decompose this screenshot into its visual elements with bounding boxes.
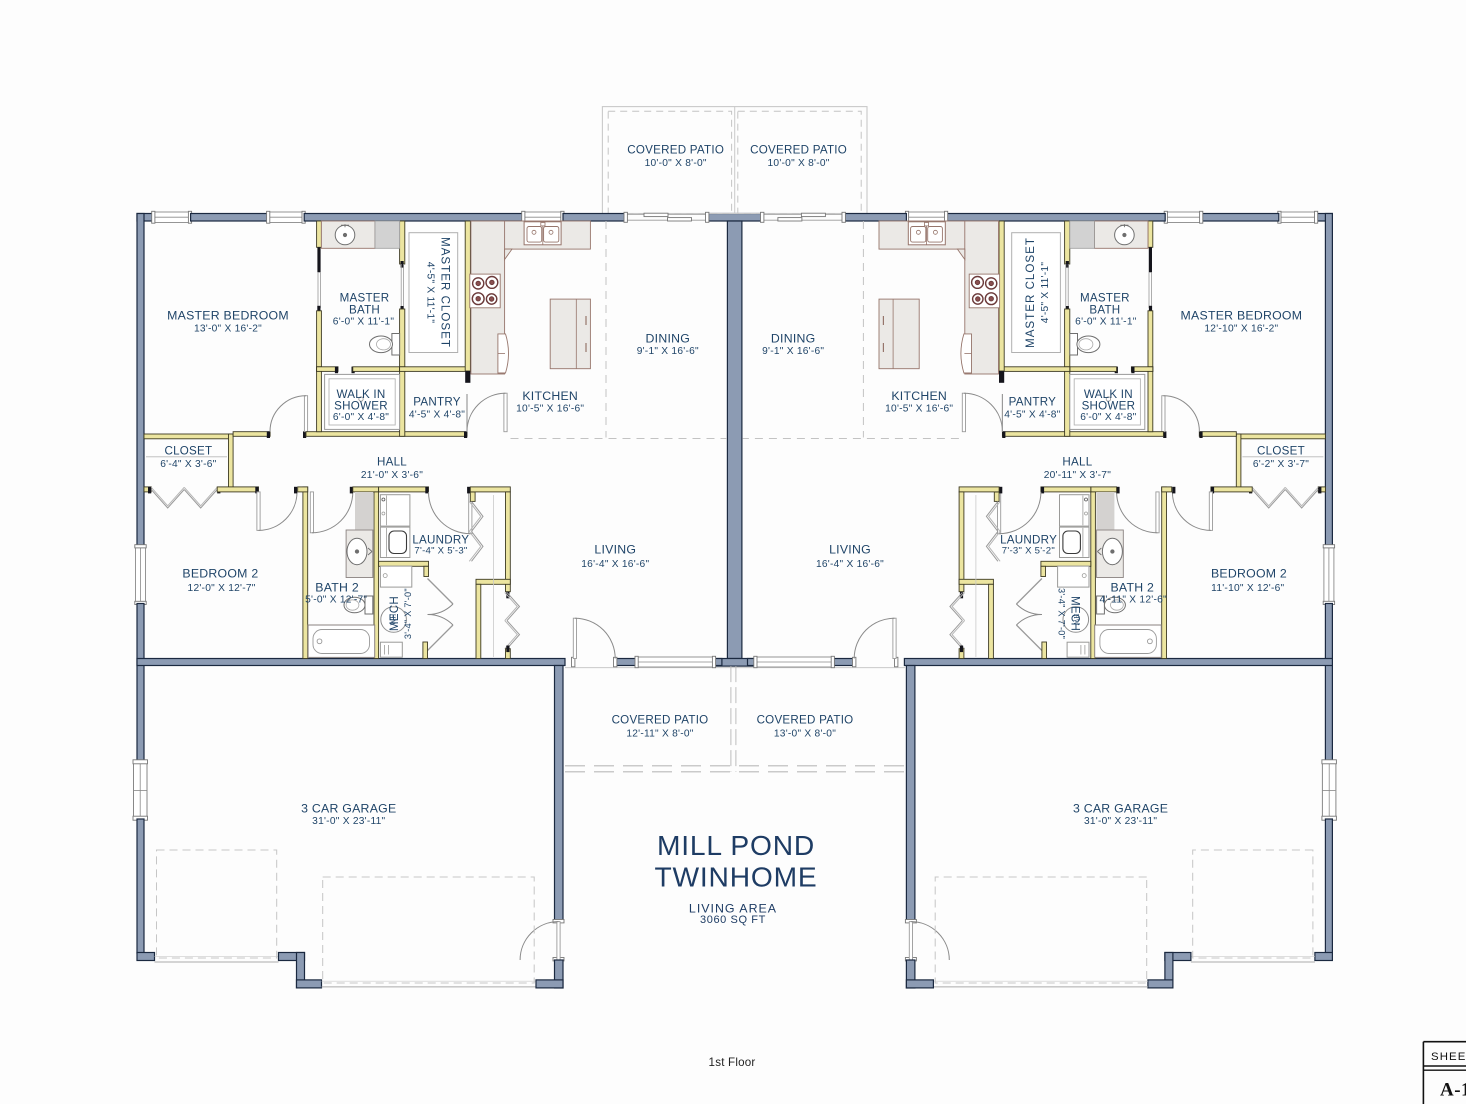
svg-text:4'-5" X 11'-1": 4'-5" X 11'-1" (425, 262, 436, 324)
svg-text:KITCHEN: KITCHEN (522, 389, 578, 403)
svg-text:16'-4" X 16'-6": 16'-4" X 16'-6" (581, 559, 649, 570)
svg-text:BATH: BATH (1089, 304, 1120, 317)
svg-text:6'-0" X 11'-1": 6'-0" X 11'-1" (1075, 317, 1137, 328)
svg-text:CLOSET: CLOSET (164, 445, 212, 458)
svg-text:4'-5" X 4'-8": 4'-5" X 4'-8" (1004, 410, 1060, 421)
svg-text:BEDROOM 2: BEDROOM 2 (182, 567, 258, 581)
svg-text:HALL: HALL (377, 456, 407, 469)
svg-text:16'-4" X 16'-6": 16'-4" X 16'-6" (816, 559, 884, 570)
svg-text:10'-0" X 8'-0": 10'-0" X 8'-0" (645, 158, 707, 169)
svg-text:6'-2" X 3'-7": 6'-2" X 3'-7" (1253, 459, 1309, 470)
svg-text:LIVING: LIVING (829, 543, 871, 557)
svg-text:7'-3" X 5'-2": 7'-3" X 5'-2" (1002, 546, 1055, 557)
svg-text:CLOSET: CLOSET (1257, 445, 1305, 458)
svg-text:PANTRY: PANTRY (413, 396, 460, 409)
svg-text:7'-4" X 5'-3": 7'-4" X 5'-3" (414, 546, 467, 557)
svg-text:COVERED PATIO: COVERED PATIO (757, 714, 854, 727)
svg-text:4'-11" X 12'-6": 4'-11" X 12'-6" (1100, 594, 1167, 605)
svg-text:SHOWER: SHOWER (334, 400, 388, 413)
svg-text:KITCHEN: KITCHEN (891, 389, 947, 403)
svg-text:6'-0" X 4'-8": 6'-0" X 4'-8" (333, 412, 389, 423)
svg-text:A-1: A-1 (1440, 1080, 1466, 1101)
svg-text:DINING: DINING (771, 332, 816, 346)
svg-text:3'-4" X 7'-0": 3'-4" X 7'-0" (403, 588, 413, 639)
svg-text:MASTER BEDROOM: MASTER BEDROOM (1181, 309, 1303, 323)
svg-text:6'-0" X 11'-1": 6'-0" X 11'-1" (333, 317, 395, 328)
svg-text:BEDROOM 2: BEDROOM 2 (1211, 567, 1287, 581)
svg-text:31'-0" X 23'-11": 31'-0" X 23'-11" (312, 816, 385, 827)
svg-text:MASTER BEDROOM: MASTER BEDROOM (167, 309, 289, 323)
svg-text:5'-0" X 12'-7": 5'-0" X 12'-7" (305, 594, 367, 605)
svg-text:11'-10" X 12'-6": 11'-10" X 12'-6" (1211, 583, 1284, 594)
svg-text:9'-1" X 16'-6": 9'-1" X 16'-6" (637, 346, 699, 357)
svg-text:LIVING: LIVING (594, 543, 636, 557)
svg-text:3'-4" X 7'-0": 3'-4" X 7'-0" (1057, 588, 1067, 639)
svg-text:BATH: BATH (349, 304, 380, 317)
svg-text:12'-10" X 16'-2": 12'-10" X 16'-2" (1204, 324, 1278, 335)
svg-text:10'-0" X 8'-0": 10'-0" X 8'-0" (767, 158, 829, 169)
svg-text:31'-0" X 23'-11": 31'-0" X 23'-11" (1084, 816, 1157, 827)
svg-text:SHOWER: SHOWER (1082, 400, 1136, 413)
svg-text:3 CAR GARAGE: 3 CAR GARAGE (301, 802, 396, 816)
svg-text:COVERED PATIO: COVERED PATIO (627, 144, 724, 157)
svg-text:DINING: DINING (646, 332, 691, 346)
svg-text:COVERED PATIO: COVERED PATIO (612, 714, 709, 727)
svg-text:BATH 2: BATH 2 (315, 581, 359, 595)
svg-text:MASTER CLOSET: MASTER CLOSET (439, 237, 452, 348)
svg-text:13'-0" X 16'-2": 13'-0" X 16'-2" (194, 324, 262, 335)
svg-text:MILL POND: MILL POND (657, 829, 815, 861)
svg-text:3 CAR GARAGE: 3 CAR GARAGE (1073, 802, 1168, 816)
svg-text:6'-0" X 4'-8": 6'-0" X 4'-8" (1080, 412, 1136, 423)
svg-text:1st Floor: 1st Floor (709, 1056, 756, 1069)
svg-text:4'-5" X 11'-1": 4'-5" X 11'-1" (1040, 262, 1051, 324)
svg-text:MASTER CLOSET: MASTER CLOSET (1024, 237, 1037, 348)
svg-text:10'-5" X 16'-6": 10'-5" X 16'-6" (885, 403, 953, 414)
svg-text:4'-5" X 4'-8": 4'-5" X 4'-8" (409, 410, 465, 421)
svg-text:MECH: MECH (1068, 596, 1081, 631)
svg-text:6'-4" X 3'-6": 6'-4" X 3'-6" (160, 459, 216, 470)
svg-text:3060 SQ FT: 3060 SQ FT (700, 914, 766, 926)
svg-text:13'-0" X 8'-0": 13'-0" X 8'-0" (774, 729, 836, 740)
svg-text:9'-1" X 16'-6": 9'-1" X 16'-6" (762, 346, 824, 357)
svg-text:20'-11" X 3'-7": 20'-11" X 3'-7" (1044, 470, 1111, 481)
svg-text:12'-11" X 8'-0": 12'-11" X 8'-0" (626, 729, 693, 740)
svg-text:TWINHOME: TWINHOME (655, 861, 818, 893)
svg-text:COVERED PATIO: COVERED PATIO (750, 144, 847, 157)
svg-text:MECH: MECH (388, 596, 401, 631)
svg-text:PANTRY: PANTRY (1009, 396, 1056, 409)
svg-text:12'-0" X 12'-7": 12'-0" X 12'-7" (188, 583, 256, 594)
svg-text:HALL: HALL (1062, 456, 1092, 469)
svg-text:BATH 2: BATH 2 (1110, 581, 1154, 595)
svg-text:SHEET: SHEET (1431, 1051, 1466, 1063)
svg-text:21'-0" X 3'-6": 21'-0" X 3'-6" (361, 470, 423, 481)
svg-text:10'-5" X 16'-6": 10'-5" X 16'-6" (516, 403, 584, 414)
